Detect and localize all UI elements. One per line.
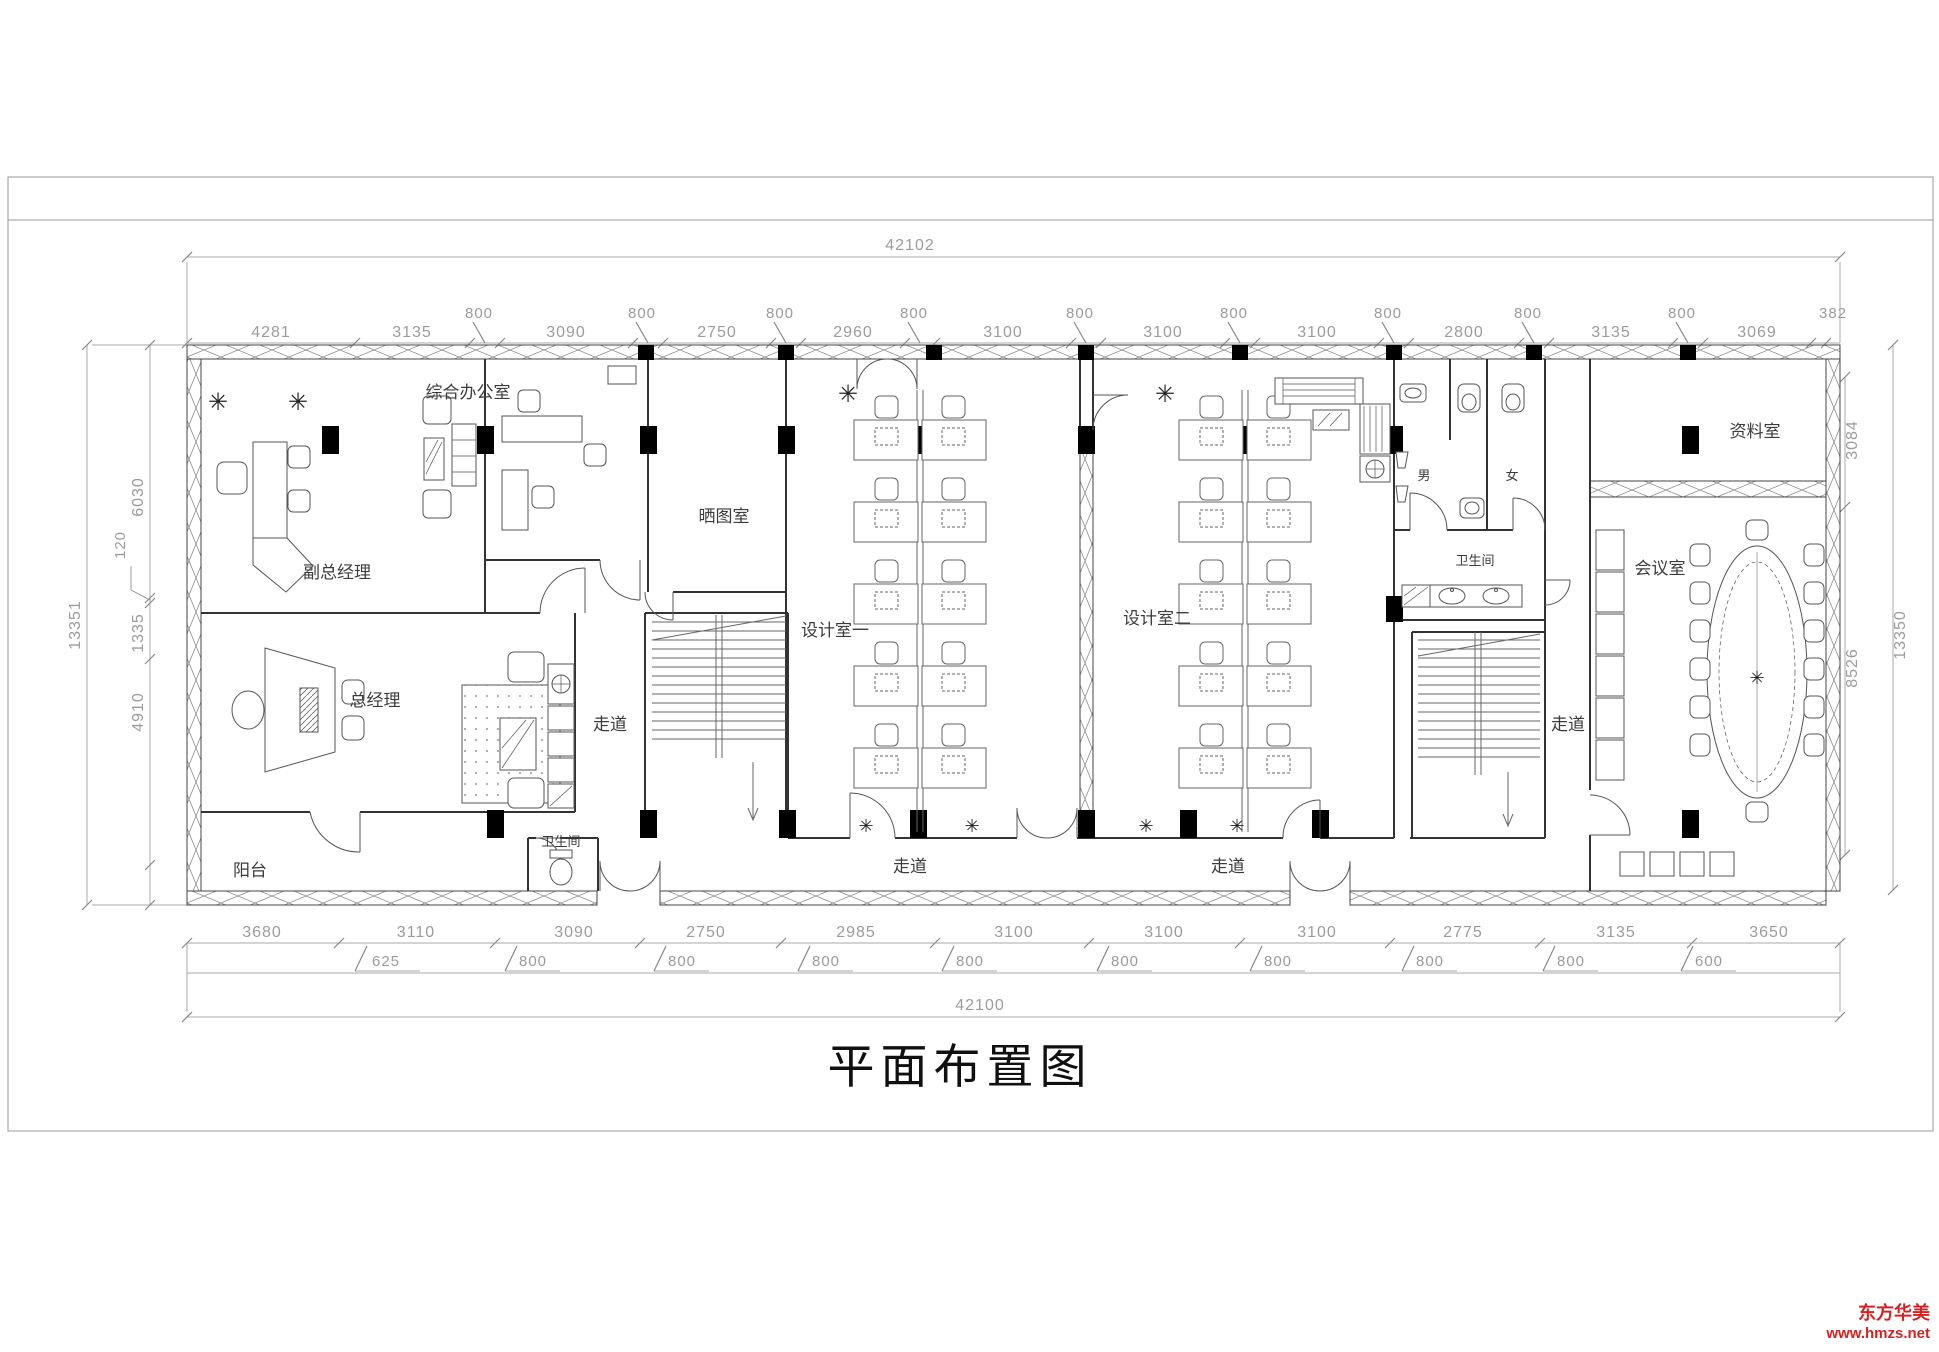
svg-text:800: 800 <box>1066 305 1094 322</box>
restroom-fixtures <box>1396 384 1524 607</box>
plant-icon: ✳ <box>1155 381 1175 408</box>
stairs-1 <box>652 615 786 820</box>
svg-text:800: 800 <box>1668 305 1696 322</box>
svg-text:2960: 2960 <box>833 324 873 341</box>
svg-text:3100: 3100 <box>983 324 1023 341</box>
svg-text:800: 800 <box>900 305 928 322</box>
svg-text:800: 800 <box>956 953 984 970</box>
plant-icon: ✳ <box>288 389 308 416</box>
room-label-corridor-1: 走道 <box>593 715 627 734</box>
svg-text:800: 800 <box>628 305 656 322</box>
svg-text:2985: 2985 <box>836 924 876 941</box>
room-label-wc-small: 卫生间 <box>541 834 580 849</box>
svg-text:2750: 2750 <box>697 324 737 341</box>
dimension-ticks <box>82 252 1898 1022</box>
dim-top-total: 42102 <box>885 237 935 254</box>
svg-text:3100: 3100 <box>1144 924 1184 941</box>
svg-text:800: 800 <box>519 953 547 970</box>
svg-text:600: 600 <box>1695 953 1723 970</box>
furniture-small-wc <box>550 850 572 885</box>
room-label-design1: 设计室一 <box>801 621 869 640</box>
room-label-male: 男 <box>1417 468 1430 483</box>
svg-text:800: 800 <box>1264 953 1292 970</box>
watermark-brand: 东方华美 <box>1690 1302 1930 1325</box>
workstations-design2 <box>1179 390 1311 832</box>
svg-text:3090: 3090 <box>554 924 594 941</box>
svg-text:3135: 3135 <box>1591 324 1631 341</box>
furniture-general-office <box>502 366 636 530</box>
dim-bottom-total: 42100 <box>955 997 1005 1014</box>
svg-text:3135: 3135 <box>392 324 432 341</box>
stairs-2 <box>1418 632 1540 826</box>
workstations-design1 <box>854 390 986 832</box>
svg-text:3100: 3100 <box>1297 924 1337 941</box>
watermark-url[interactable]: www.hmzs.net <box>1690 1325 1930 1344</box>
room-label-corridor-4: 走道 <box>1551 715 1585 734</box>
svg-text:3069: 3069 <box>1737 324 1777 341</box>
room-label-wc-main: 卫生间 <box>1455 553 1494 568</box>
svg-text:800: 800 <box>465 305 493 322</box>
room-label-female: 女 <box>1505 468 1518 483</box>
svg-text:13351: 13351 <box>67 600 84 650</box>
svg-text:4281: 4281 <box>251 324 291 341</box>
floor-plan-sheet: 42102 42100 4281 3135 800 3090 800 2750 … <box>0 0 1939 1352</box>
room-label-meeting: 会议室 <box>1635 559 1686 578</box>
svg-text:3135: 3135 <box>1596 924 1636 941</box>
svg-text:2750: 2750 <box>686 924 726 941</box>
svg-text:6030: 6030 <box>130 477 147 517</box>
plant-icon: ✳ <box>1749 668 1764 688</box>
svg-text:3650: 3650 <box>1749 924 1789 941</box>
svg-text:800: 800 <box>1374 305 1402 322</box>
svg-text:3100: 3100 <box>994 924 1034 941</box>
room-label-corridor-3: 走道 <box>1211 857 1245 876</box>
svg-text:800: 800 <box>1514 305 1542 322</box>
svg-text:1335: 1335 <box>130 613 147 653</box>
plant-icon: ✳ <box>1138 816 1153 836</box>
conference-furniture <box>1596 520 1824 876</box>
svg-text:3090: 3090 <box>546 324 586 341</box>
svg-text:800: 800 <box>1557 953 1585 970</box>
watermark: 东方华美 www.hmzs.net <box>1690 1302 1930 1343</box>
exterior-walls <box>187 345 1840 905</box>
room-label-corridor-2: 走道 <box>893 857 927 876</box>
svg-text:800: 800 <box>1416 953 1444 970</box>
svg-text:3100: 3100 <box>1143 324 1183 341</box>
room-label-balcony: 阳台 <box>233 861 267 880</box>
svg-text:625: 625 <box>372 953 400 970</box>
room-label-blueprint: 晒图室 <box>699 507 750 526</box>
svg-text:800: 800 <box>812 953 840 970</box>
room-label-archive: 资料室 <box>1730 422 1781 441</box>
floor-plan-drawing: 42102 42100 4281 3135 800 3090 800 2750 … <box>0 0 1939 1352</box>
svg-text:800: 800 <box>1220 305 1248 322</box>
svg-text:3680: 3680 <box>242 924 282 941</box>
plant-icon: ✳ <box>964 816 979 836</box>
room-label-deputy-gm: 副总经理 <box>303 563 371 582</box>
room-label-design2: 设计室二 <box>1123 609 1191 628</box>
svg-text:3110: 3110 <box>397 924 435 941</box>
plant-icon: ✳ <box>1229 816 1244 836</box>
svg-text:13350: 13350 <box>1892 610 1909 660</box>
drawing-title: 平面布置图 <box>700 1028 1220 1097</box>
plant-icon: ✳ <box>858 816 873 836</box>
plant-icon: ✳ <box>838 381 858 408</box>
plant-icon: ✳ <box>208 389 228 416</box>
svg-text:3084: 3084 <box>1844 420 1861 460</box>
room-label-gm: 总经理 <box>350 691 401 710</box>
svg-text:382: 382 <box>1819 305 1847 322</box>
svg-text:8526: 8526 <box>1844 648 1861 688</box>
sheet-frame <box>8 177 1933 1131</box>
furniture-gm <box>232 648 574 808</box>
svg-text:120: 120 <box>112 531 129 559</box>
svg-text:4910: 4910 <box>130 692 147 732</box>
svg-text:2775: 2775 <box>1443 924 1483 941</box>
svg-text:800: 800 <box>1111 953 1139 970</box>
svg-text:2800: 2800 <box>1444 324 1484 341</box>
svg-text:3100: 3100 <box>1297 324 1337 341</box>
svg-text:800: 800 <box>766 305 794 322</box>
room-label-general-office: 综合办公室 <box>426 383 511 402</box>
svg-text:800: 800 <box>668 953 696 970</box>
